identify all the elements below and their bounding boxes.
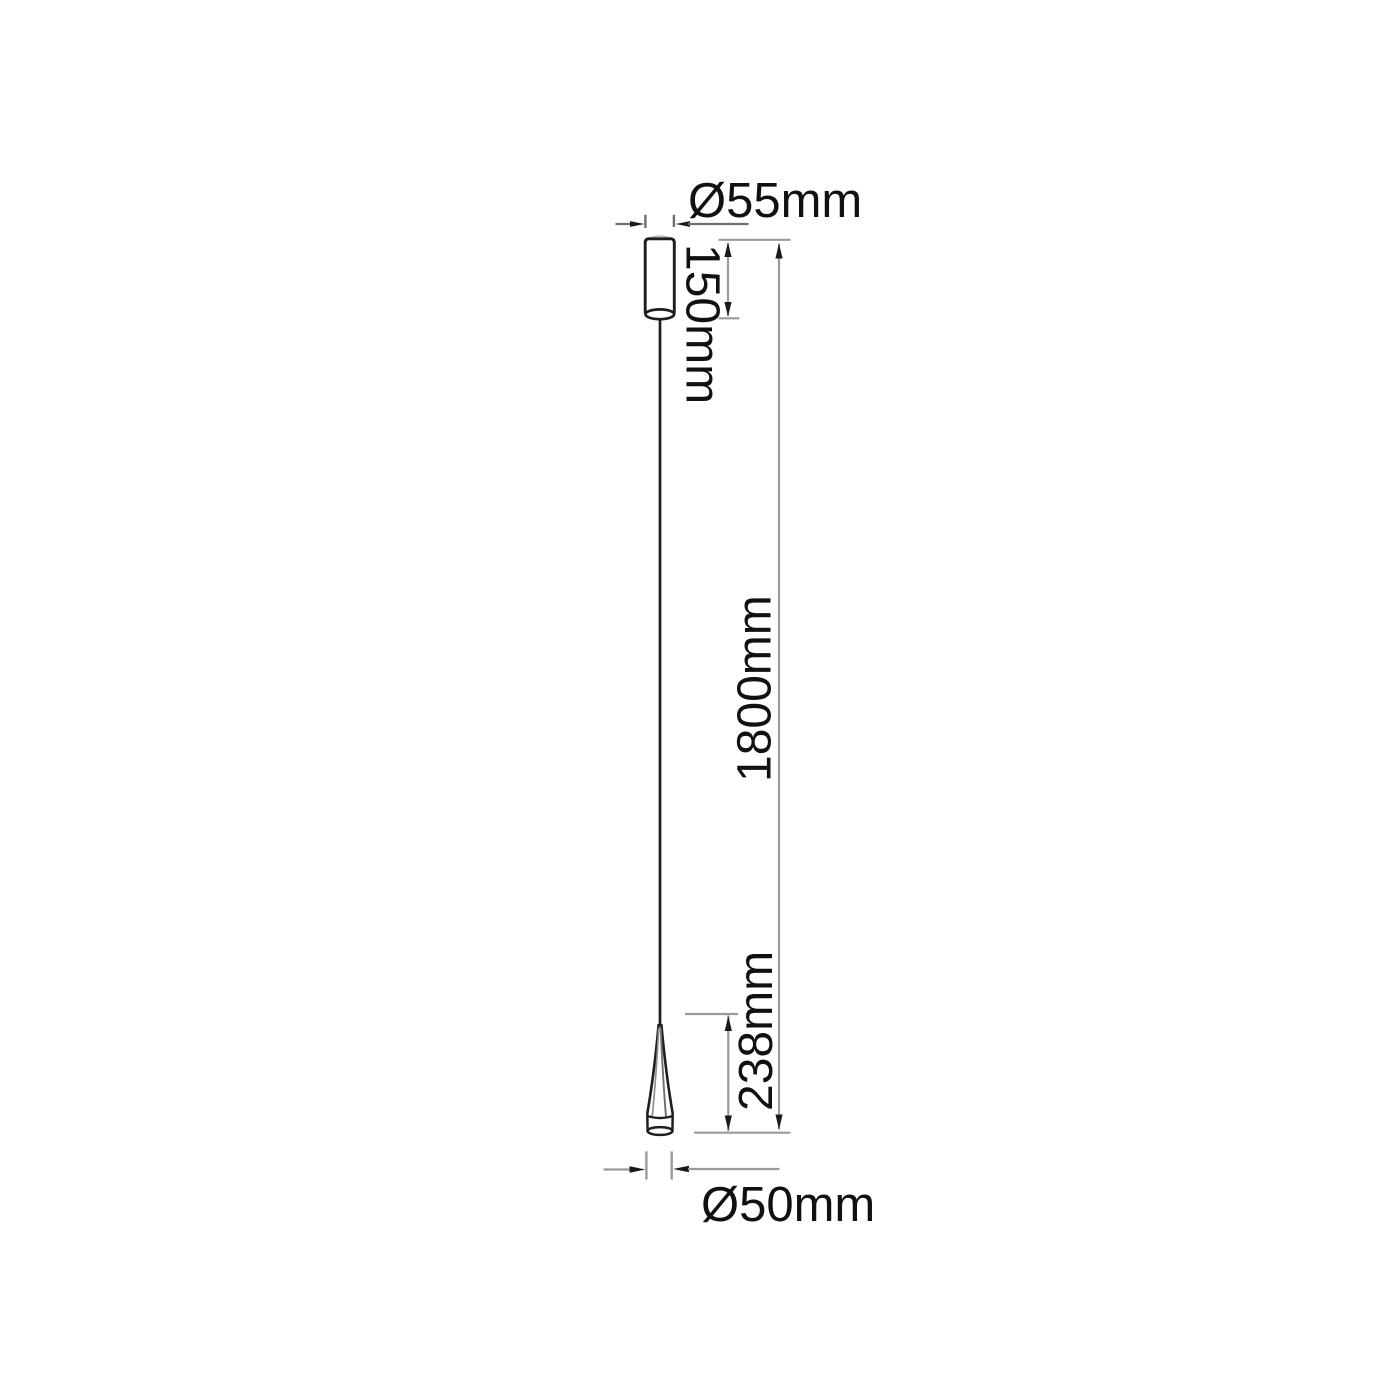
svg-text:Ø55mm: Ø55mm [688, 174, 862, 228]
svg-text:150mm: 150mm [676, 244, 729, 404]
svg-text:238mm: 238mm [730, 951, 783, 1111]
svg-text:Ø50mm: Ø50mm [701, 1178, 875, 1232]
svg-text:1800mm: 1800mm [729, 595, 782, 782]
